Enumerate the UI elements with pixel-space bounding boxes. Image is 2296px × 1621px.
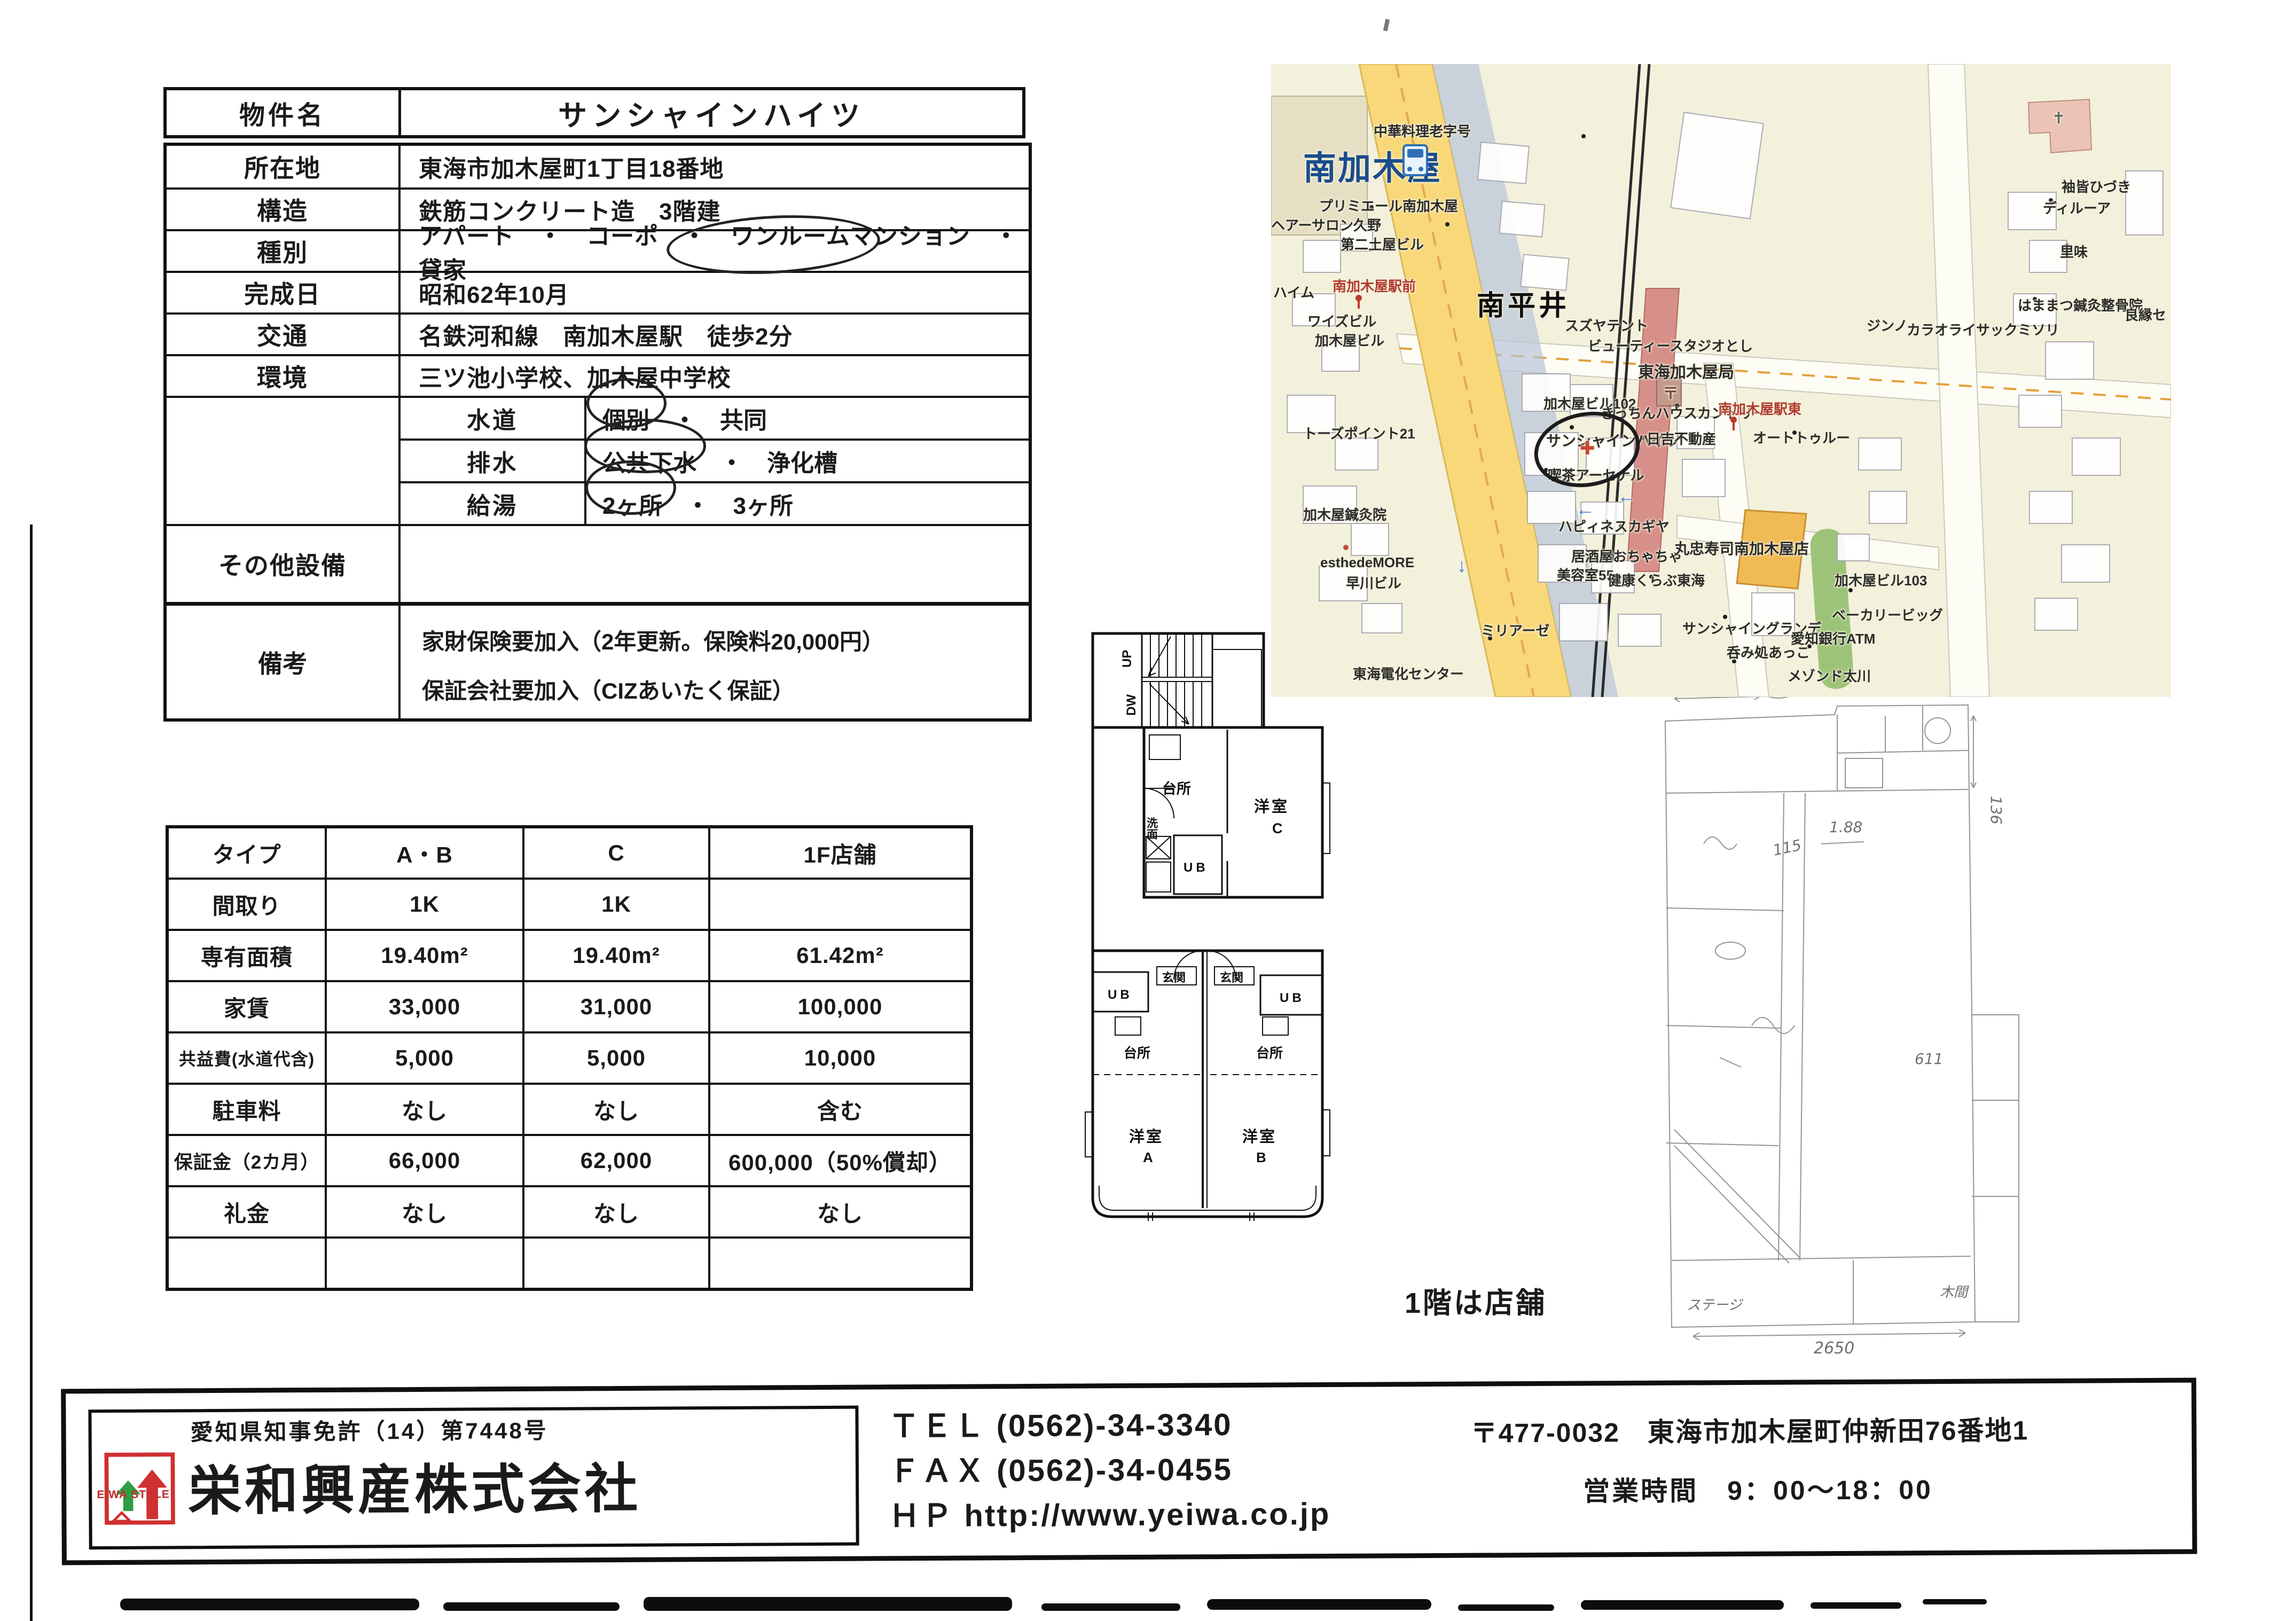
row-value: 三ツ池小学校、加木屋中学校 (401, 356, 1029, 396)
unit-b-label: B (1256, 1149, 1266, 1165)
scan-artifact-smear (1041, 1603, 1180, 1611)
map-label: ベーカリービッグ (1832, 605, 1943, 624)
stair-treads (1142, 633, 1212, 727)
table-row: 完成日 昭和62年10月 (167, 273, 1029, 315)
cell: 31,000 (524, 982, 710, 1031)
row-label: 礼金 (169, 1187, 327, 1236)
annotation-circle-hotwater (585, 460, 676, 515)
cell: 66,000 (327, 1136, 524, 1185)
row-label: 排水 (401, 441, 586, 481)
logo-roof (113, 1513, 130, 1521)
map-label: プリミエール南加木屋 (1319, 195, 1458, 215)
washroom-label: 洗面 (1146, 817, 1158, 840)
map-label: ワイズビル (1307, 311, 1376, 331)
cell: 61.42m² (710, 931, 970, 980)
scanned-property-listing: { "property": { "title_label": "物件名", "t… (0, 0, 2296, 1621)
map-label: esthedeMORE (1320, 554, 1414, 571)
kitchen-label-b: 台所 (1256, 1045, 1283, 1061)
map-label: カラオライサックミソリ (1907, 319, 2059, 339)
one-way-arrow-icon: ← (1617, 485, 1636, 507)
tel-number: ＴＥＬ (0562)-34-3340 (888, 1402, 1330, 1449)
cell: 600,000（50%償却） (710, 1136, 970, 1185)
map-label: 良縁セ (2125, 304, 2166, 324)
dim-label: 136 (1987, 796, 2005, 824)
row-label: 交通 (167, 315, 401, 354)
scan-artifact-mark (1383, 19, 1390, 31)
map-label: オートトゥルー (1753, 427, 1850, 447)
floor-plan-walls (1085, 633, 1330, 1221)
business-hours: 営業時間 9：00～18：00 (1583, 1468, 1933, 1508)
hand-drawn-plan-sketch: 180 1.88 115 136 611 2650 ステージ 木間 (1624, 684, 2029, 1367)
cell (710, 880, 970, 929)
col-header: C (524, 828, 710, 878)
row-label: 専有面積 (169, 931, 327, 980)
scan-artifact-smear (1923, 1599, 1987, 1604)
map-label: 愛知銀行ATM (1791, 628, 1875, 648)
map-label: 袖皆ひづき (2062, 176, 2131, 196)
row-label: 共益費(水道代含) (169, 1033, 327, 1083)
table-row: 間取り 1K 1K (169, 880, 970, 931)
map-label: 南加木屋駅東 (1718, 398, 1801, 418)
map-label: 美容室55 (1557, 565, 1614, 584)
cell: 19.40m² (524, 931, 710, 980)
map-label-area: 南平井 (1477, 283, 1570, 323)
cell: 含む (710, 1085, 970, 1134)
company-footer: 愛知県知事免許（14）第7448号 EIWA STYLE 栄和興産株式会社 ＴＥ… (61, 1378, 2197, 1565)
one-way-arrow-icon: ↓ (1457, 554, 1467, 577)
bus-stop-icon (1730, 417, 1737, 423)
cell: 10,000 (710, 1033, 970, 1083)
cell: 5,000 (327, 1033, 524, 1083)
map-label: 中華料理老字号 (1374, 121, 1471, 140)
col-header: 1F店舗 (710, 828, 970, 878)
table-row: 水道 個別 ・ 共同 (401, 398, 1029, 441)
map-label: メゾンド太川 (1788, 665, 1871, 685)
table-row: 専有面積 19.40m² 19.40m² 61.42m² (169, 931, 970, 982)
first-floor-note: 1階は店舗 (1405, 1279, 1547, 1321)
row-label: 間取り (169, 880, 327, 929)
row-value: 昭和62年10月 (401, 273, 1029, 312)
company-name: 栄和興産株式会社 (188, 1445, 641, 1525)
dim-label: 115 (1772, 836, 1803, 859)
row-label: 駐車料 (169, 1085, 327, 1134)
row-label: 完成日 (167, 273, 401, 312)
empty-cell (327, 1239, 524, 1288)
ub-label-c: UB (1184, 860, 1209, 875)
company-box: 愛知県知事免許（14）第7448号 EIWA STYLE 栄和興産株式会社 (88, 1406, 859, 1550)
cell: 62,000 (524, 1136, 710, 1185)
table-row-remarks: 備考 家財保険要加入（2年更新。保険料20,000円） 保証会社要加入（CIZあ… (167, 604, 1029, 718)
map-label: 健康くらぶ東海 (1608, 570, 1705, 590)
scan-artifact-smear (644, 1597, 1012, 1611)
ub-label-b: UB (1280, 991, 1305, 1005)
map-label: ミリアーゼ (1481, 620, 1549, 640)
postal-icon: 〒 (1663, 380, 1679, 404)
table-row: 家賃 33,000 31,000 100,000 (169, 982, 970, 1033)
col-header: A・B (327, 828, 524, 878)
map-label: はままつ鍼灸整骨院 (2018, 295, 2143, 315)
price-table: タイプ A・B C 1F店舗 間取り 1K 1K 専有面積 19.40m² 19… (166, 825, 973, 1291)
map-label: 里味 (2060, 241, 2088, 261)
unit-a-label: A (1143, 1149, 1153, 1165)
dim-label: 611 (1915, 1050, 1943, 1068)
empty-cell (167, 398, 401, 524)
map-label: トーズポイント21 (1303, 423, 1415, 443)
company-address: 〒477-0032 東海市加木屋町仲新田76番地1 (1470, 1409, 2028, 1450)
map-label: 加木屋鍼灸院 (1303, 504, 1386, 524)
map-label: 東海電化センター (1353, 663, 1464, 683)
map-label: 日吉不動産 (1647, 428, 1716, 448)
cell: 1K (327, 880, 524, 929)
row-value: 東海市加木屋町1丁目18番地 (401, 146, 1029, 187)
cell: なし (710, 1187, 970, 1236)
map-label: 東海加木屋局 (1638, 359, 1734, 382)
stairs-down-label: DW (1124, 694, 1139, 716)
room-label-b: 洋室 (1242, 1127, 1276, 1146)
row-value-empty (401, 526, 1029, 602)
table-row: 給湯 2ヶ所 ・ 3ヶ所 (401, 483, 1029, 524)
location-map: 中華料理老字号 南加木屋 南平井 プリミエール南加木屋 ヘアーサロン久野 第二土… (1271, 64, 2171, 697)
row-label: 給湯 (401, 483, 586, 524)
table-row: 礼金 なし なし なし (169, 1187, 970, 1239)
row-label: 所在地 (167, 146, 401, 187)
contact-block: ＴＥＬ (0562)-34-3340 ＦＡＸ (0562)-34-0455 ＨＰ… (888, 1402, 1330, 1539)
utilities-subtable: 水道 個別 ・ 共同 排水 公共下水 ・ 浄化槽 給湯 2ヶ所 ・ 3ヶ所 (401, 398, 1029, 524)
cell: 5,000 (524, 1033, 710, 1083)
table-row-other-facilities: その他設備 (167, 526, 1029, 604)
empty-cell (524, 1239, 710, 1288)
scan-artifact-line (30, 524, 33, 1621)
row-label: 保証金（2カ月） (169, 1136, 327, 1185)
map-label: 早川ビル (1346, 573, 1401, 592)
license-number: 愛知県知事免許（14）第7448号 (190, 1413, 548, 1447)
remarks-value: 家財保険要加入（2年更新。保険料20,000円） 保証会社要加入（CIZあいたく… (401, 606, 1029, 718)
map-label: 丸忠寿司南加木屋店 (1674, 537, 1809, 559)
row-label: その他設備 (167, 526, 401, 602)
entrance-label-b: 玄関 (1220, 971, 1243, 984)
entrance-label-a: 玄関 (1162, 971, 1186, 984)
bus-stop-icon (1355, 295, 1362, 301)
sketch-word: 木間 (1940, 1285, 1969, 1301)
scan-artifact-smear (1581, 1600, 1784, 1610)
table-row: 種別 アパート ・ コーポ ・ ワンルームマンション ・ 貸家 (167, 231, 1029, 273)
dim-label: 2650 (1814, 1339, 1854, 1358)
map-label: 加木屋ビル (1315, 330, 1384, 350)
table-row: 交通 名鉄河和線 南加木屋駅 徒歩2分 (167, 315, 1029, 356)
cell: 100,000 (710, 982, 970, 1031)
unit-c-label: C (1272, 820, 1283, 836)
cell: 1K (524, 880, 710, 929)
row-label: 種別 (167, 231, 401, 271)
cell: なし (524, 1187, 710, 1236)
kitchen-label-c: 台所 (1162, 780, 1191, 797)
property-name-label: 物件名 (167, 90, 401, 135)
stairs-up-label: UP (1120, 650, 1134, 668)
map-label: 第二土屋ビル (1341, 234, 1424, 254)
price-header-row: タイプ A・B C 1F店舗 (169, 828, 970, 880)
map-label: 居酒屋おちゃちゃ (1571, 546, 1682, 566)
floor-plan-drawing: UP DW 台所 洗面 UB 洋室 C 玄関 玄関 UB UB 台所 台所 洋室… (1084, 630, 1341, 1234)
map-label: ジンノ (1867, 315, 1908, 335)
row-label: 構造 (167, 190, 401, 229)
cell: 33,000 (327, 982, 524, 1031)
property-table: 物件名 サンシャインハイツ 所在地 東海市加木屋町1丁目18番地 構造 鉄筋コン… (163, 87, 1025, 138)
row-label: 家賃 (169, 982, 327, 1031)
property-name-row: 物件名 サンシャインハイツ (163, 87, 1025, 138)
table-row-empty (169, 1239, 970, 1288)
table-row: 保証金（2カ月） 66,000 62,000 600,000（50%償却） (169, 1136, 970, 1187)
kitchen-label-a: 台所 (1124, 1045, 1150, 1061)
map-label: ヘアーサロン久野 (1271, 215, 1381, 234)
one-way-arrow-icon: ← (1576, 498, 1595, 520)
sketch-lines (1665, 691, 2019, 1340)
homepage-url: ＨＰ http://www.yeiwa.co.jp (889, 1492, 1330, 1539)
row-label: 水道 (401, 398, 586, 438)
map-label: 南加木屋駅前 (1333, 276, 1416, 295)
row-label: 環境 (167, 356, 401, 396)
table-row: 所在地 東海市加木屋町1丁目18番地 (167, 146, 1029, 190)
table-row: 排水 公共下水 ・ 浄化槽 (401, 441, 1029, 483)
table-row: 駐車料 なし なし 含む (169, 1085, 970, 1136)
row-label: 備考 (167, 606, 401, 718)
scan-artifact-smear (443, 1602, 620, 1611)
scan-artifact-smear (1811, 1602, 1901, 1609)
dim-label: 1.88 (1829, 818, 1862, 836)
cell: なし (327, 1187, 524, 1236)
ub-label-a: UB (1108, 988, 1133, 1002)
remark-line: 家財保険要加入（2年更新。保険料20,000円） (422, 617, 1029, 667)
cell: 19.40m² (327, 931, 524, 980)
train-station-icon (1402, 144, 1428, 176)
table-row: 共益費(水道代含) 5,000 5,000 10,000 (169, 1033, 970, 1085)
map-label: スズヤテント (1565, 315, 1648, 335)
row-value: 名鉄河和線 南加木屋駅 徒歩2分 (401, 315, 1029, 354)
sketch-word: ステージ (1687, 1297, 1743, 1313)
cell: なし (327, 1085, 524, 1134)
property-name-value: サンシャインハイツ (401, 90, 1022, 135)
map-label: 加木屋ビル103 (1835, 570, 1927, 590)
logo-text: EIWA STYLE (92, 1488, 175, 1501)
col-header: タイプ (169, 828, 327, 878)
church-cross-icon: ✝ (2052, 109, 2065, 128)
room-label-a: 洋室 (1129, 1127, 1163, 1146)
map-label: ハイム (1273, 282, 1314, 302)
scan-artifact-smear (120, 1599, 419, 1610)
empty-cell (169, 1239, 327, 1288)
cell: なし (524, 1085, 710, 1134)
remark-line: 保証会社要加入（CIZあいたく保証） (422, 667, 1029, 716)
scan-artifact-smear (1458, 1604, 1554, 1611)
room-label-c: 洋室 (1254, 797, 1289, 816)
map-label: ディルーア (2043, 198, 2111, 217)
scan-artifact-smear (1207, 1599, 1431, 1610)
map-label: ビューティースタジオとし (1588, 335, 1753, 355)
empty-cell (710, 1239, 970, 1288)
fax-number: ＦＡＸ (0562)-34-0455 (889, 1447, 1330, 1494)
